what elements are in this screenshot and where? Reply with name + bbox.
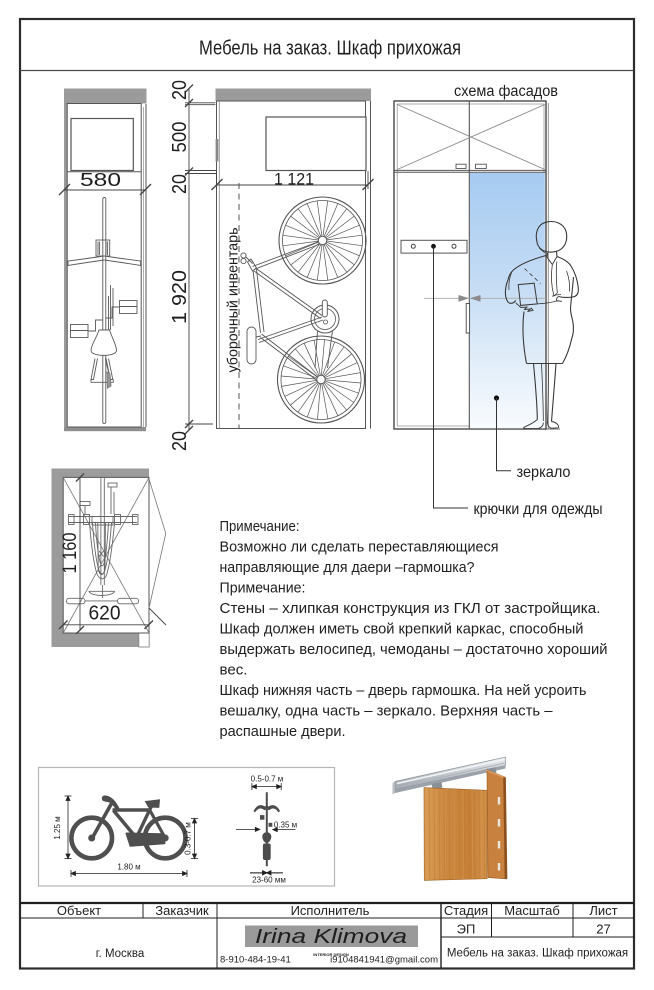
svg-text:распашные двери.: распашные двери. <box>220 723 346 740</box>
svg-text:20: 20 <box>169 174 191 194</box>
svg-text:580: 580 <box>80 170 121 190</box>
svg-text:0.3-0.7 м: 0.3-0.7 м <box>184 822 193 855</box>
svg-text:Шкаф должен иметь свой крепкий: Шкаф должен иметь свой крепкий каркас, с… <box>220 620 584 637</box>
svg-text:Масштаб: Масштаб <box>504 903 560 918</box>
svg-text:направляющие для даери –гармош: направляющие для даери –гармошка? <box>220 559 475 576</box>
svg-text:20: 20 <box>169 431 191 451</box>
svg-text:0.35 м: 0.35 м <box>274 821 297 830</box>
svg-text:Примечание:: Примечание: <box>220 518 300 535</box>
svg-text:Мебель на заказ. Шкаф прихожая: Мебель на заказ. Шкаф прихожая <box>447 948 628 960</box>
svg-text:крючки для одежды: крючки для одежды <box>474 501 603 518</box>
svg-text:Лист: Лист <box>589 903 617 918</box>
svg-text:20: 20 <box>169 80 191 100</box>
svg-text:8-910-484-19-41: 8-910-484-19-41 <box>220 955 291 966</box>
svg-text:уборочный инвентарь: уборочный инвентарь <box>225 227 242 372</box>
svg-text:вес.: вес. <box>220 661 248 678</box>
svg-text:1.25 м: 1.25 м <box>53 816 62 839</box>
svg-text:1 160: 1 160 <box>60 533 81 574</box>
svg-text:Заказчик: Заказчик <box>155 903 209 918</box>
svg-text:0.5-0.7 м: 0.5-0.7 м <box>251 775 284 784</box>
svg-text:27: 27 <box>596 922 610 937</box>
svg-text:Исполнитель: Исполнитель <box>291 903 370 918</box>
svg-text:схема фасадов: схема фасадов <box>454 83 558 100</box>
svg-text:620: 620 <box>89 603 121 625</box>
svg-text:Irina Klimova: Irina Klimova <box>255 926 407 948</box>
svg-text:зеркало: зеркало <box>517 464 571 481</box>
svg-text:Шкаф нижняя часть – дверь гарм: Шкаф нижняя часть – дверь гармошка. На н… <box>220 682 587 699</box>
svg-text:1.80 м: 1.80 м <box>117 863 140 872</box>
svg-text:ЭП: ЭП <box>457 922 476 937</box>
svg-text:Стадия: Стадия <box>444 903 488 918</box>
svg-text:г. Москва: г. Москва <box>96 948 145 960</box>
svg-text:i9104841941@gmail.com: i9104841941@gmail.com <box>330 955 438 966</box>
svg-text:Объект: Объект <box>57 903 101 918</box>
svg-text:500: 500 <box>169 122 191 153</box>
svg-text:1 920: 1 920 <box>169 270 191 324</box>
svg-text:вешалку, одна часть – зеркало.: вешалку, одна часть – зеркало. Верхняя ч… <box>220 702 554 719</box>
svg-text:23-60 мм: 23-60 мм <box>252 876 286 885</box>
svg-text:Стены – хлипкая конструкция из: Стены – хлипкая конструкция из ГКЛ от за… <box>220 600 601 617</box>
svg-text:Мебель на заказ. Шкаф прихожая: Мебель на заказ. Шкаф прихожая <box>199 38 461 60</box>
svg-text:выдержать велосипед, чемоданы: выдержать велосипед, чемоданы – достаточ… <box>220 641 608 658</box>
svg-text:Возможно ли сделать переставля: Возможно ли сделать переставляющиеся <box>220 538 499 555</box>
svg-text:1 121: 1 121 <box>274 170 314 189</box>
svg-text:Примечание:: Примечание: <box>220 579 306 596</box>
